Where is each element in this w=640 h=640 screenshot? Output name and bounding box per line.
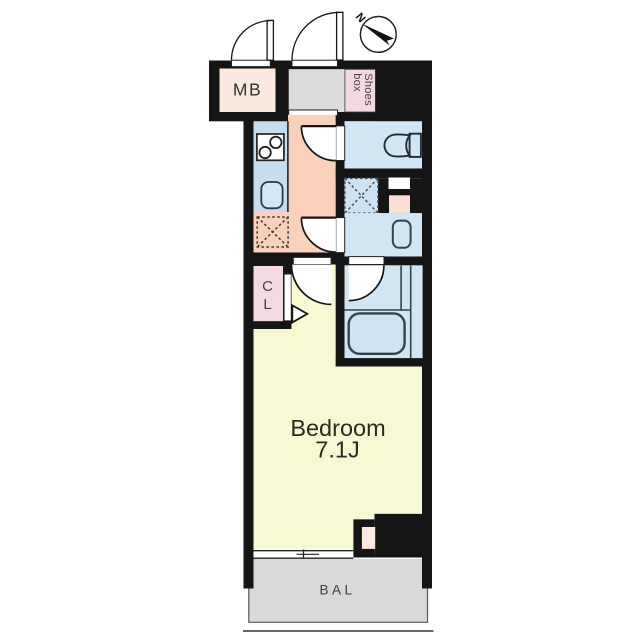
svg-text:box: box xyxy=(351,73,363,92)
svg-text:7.1J: 7.1J xyxy=(315,437,359,463)
svg-text:BAL: BAL xyxy=(319,583,355,598)
svg-text:MB: MB xyxy=(233,80,262,100)
svg-text:L: L xyxy=(263,296,271,313)
svg-text:C: C xyxy=(262,278,273,295)
